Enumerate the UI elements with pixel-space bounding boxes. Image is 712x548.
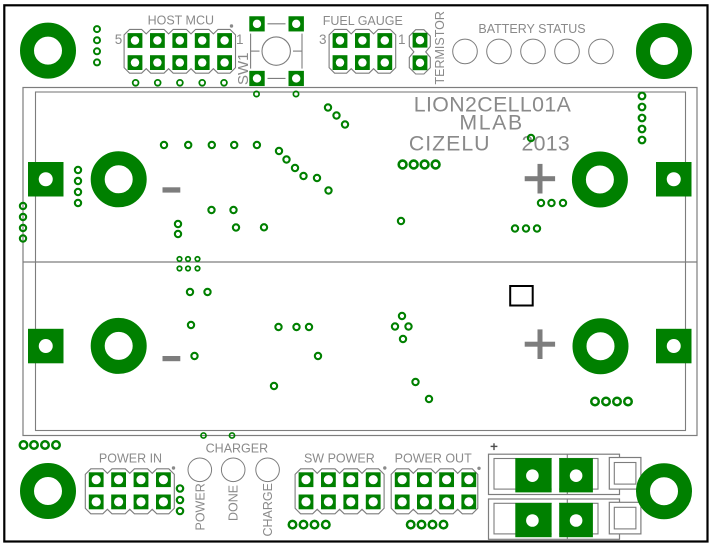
- svg-text:1: 1: [236, 32, 244, 47]
- svg-text:DONE: DONE: [227, 485, 241, 521]
- svg-text:TERMISTOR: TERMISTOR: [433, 11, 447, 84]
- svg-text:3: 3: [319, 32, 327, 47]
- svg-text:POWER IN: POWER IN: [99, 451, 162, 465]
- svg-text:HOST MCU: HOST MCU: [148, 14, 214, 28]
- svg-text:POWER: POWER: [193, 483, 207, 530]
- svg-text:CIZELU: CIZELU: [409, 131, 491, 155]
- svg-text:FUEL GAUGE: FUEL GAUGE: [323, 14, 403, 28]
- svg-text:BATTERY STATUS: BATTERY STATUS: [478, 22, 585, 36]
- svg-text:POWER OUT: POWER OUT: [395, 451, 472, 465]
- svg-text:CHARGER: CHARGER: [206, 442, 269, 456]
- svg-text:SW POWER: SW POWER: [304, 451, 375, 465]
- svg-text:5: 5: [115, 32, 123, 47]
- svg-text:1: 1: [398, 32, 406, 47]
- svg-text:CHARGE: CHARGE: [261, 483, 275, 536]
- svg-text:SW1: SW1: [235, 52, 252, 85]
